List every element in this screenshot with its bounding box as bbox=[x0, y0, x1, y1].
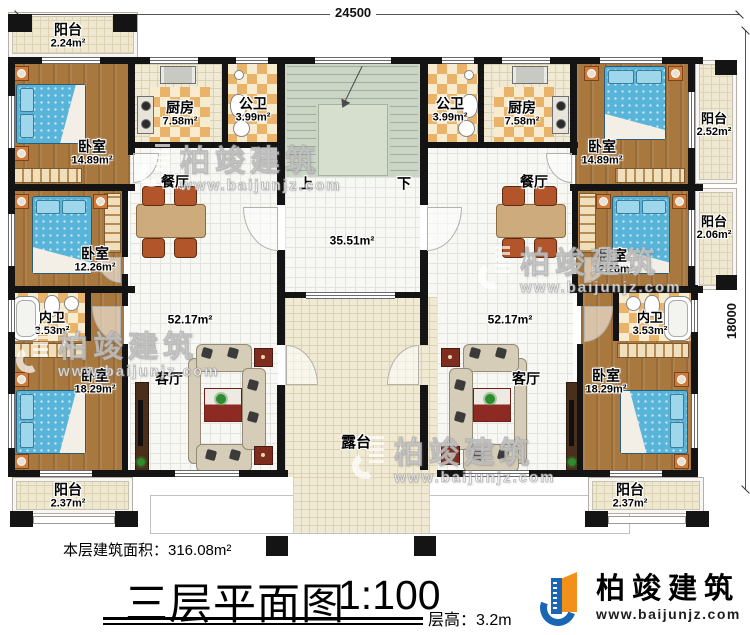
wall bbox=[577, 344, 583, 470]
room-bedroom3-left: 卧室 18.29m² bbox=[75, 368, 116, 395]
room-living-right: 客厅 bbox=[512, 371, 540, 386]
nightstand bbox=[672, 194, 687, 209]
nightstand bbox=[596, 194, 611, 209]
window bbox=[688, 210, 695, 266]
room-inner-bath-right: 内卫 3.53m² bbox=[633, 311, 668, 337]
pillow bbox=[36, 200, 60, 214]
company-name: 柏竣建筑 bbox=[596, 575, 741, 604]
balcony-post bbox=[716, 275, 737, 290]
stairs bbox=[390, 106, 418, 176]
hall-area-label: 35.51m² bbox=[330, 234, 375, 247]
scale-label: 1:100 bbox=[338, 572, 441, 619]
plant bbox=[485, 394, 495, 404]
room-public-bath-left: 公卫 3.99m² bbox=[236, 96, 271, 123]
room-bedroom1-left: 卧室 14.89m² bbox=[72, 139, 113, 166]
living-area-left: 52.17m² bbox=[168, 313, 213, 326]
wall bbox=[285, 292, 306, 298]
nightstand bbox=[14, 454, 29, 469]
wall bbox=[420, 64, 428, 205]
balcony-post bbox=[10, 511, 33, 527]
tv-icon bbox=[569, 400, 574, 446]
wardrobe bbox=[10, 343, 84, 358]
nightstand bbox=[668, 66, 683, 81]
room-bedroom2-left: 卧室 12.26m² bbox=[75, 246, 116, 273]
room-balcony-top-left: 阳台 2.24m² bbox=[51, 22, 86, 49]
pillow bbox=[642, 200, 666, 214]
wall bbox=[122, 293, 128, 306]
window bbox=[610, 470, 662, 477]
nightstand bbox=[14, 372, 29, 387]
bed-sheet bbox=[55, 85, 85, 143]
balcony-post bbox=[8, 14, 32, 32]
wall bbox=[572, 191, 578, 257]
wall bbox=[8, 184, 135, 191]
window bbox=[306, 292, 395, 299]
room-bedroom3-right: 卧室 18.29m² bbox=[586, 368, 627, 395]
right-dimension-label: 18000 bbox=[724, 298, 739, 344]
right-dimension-line bbox=[745, 30, 746, 490]
porch-post bbox=[266, 536, 288, 556]
wall bbox=[128, 142, 228, 148]
window bbox=[465, 470, 529, 477]
nightstand bbox=[584, 66, 599, 81]
rug bbox=[473, 388, 511, 422]
nightstand bbox=[14, 66, 29, 81]
room-balcony-bottom-left: 阳台 2.37m² bbox=[51, 482, 86, 509]
plant bbox=[137, 458, 145, 466]
window bbox=[175, 470, 239, 477]
pillow bbox=[20, 114, 34, 138]
bed-sheet bbox=[621, 391, 651, 453]
plant bbox=[216, 394, 226, 404]
side-table bbox=[441, 348, 460, 367]
wall bbox=[395, 292, 425, 298]
nightstand bbox=[93, 194, 108, 209]
dining-chair bbox=[534, 238, 557, 258]
wall bbox=[228, 142, 284, 148]
dining-chair bbox=[174, 238, 197, 258]
wall bbox=[277, 385, 285, 470]
bed-sheet bbox=[605, 109, 665, 139]
room-balcony-bottom-right: 阳台 2.37m² bbox=[613, 482, 648, 509]
wall bbox=[122, 191, 128, 257]
window bbox=[600, 57, 662, 64]
bathtub bbox=[664, 296, 692, 341]
room-kitchen-right: 厨房 7.58m² bbox=[505, 100, 540, 127]
top-dimension-label: 24500 bbox=[330, 5, 376, 20]
window bbox=[688, 92, 695, 148]
kitchen-sink bbox=[160, 66, 196, 84]
window bbox=[691, 394, 698, 448]
window bbox=[8, 300, 15, 332]
window bbox=[40, 470, 92, 477]
pillow bbox=[20, 88, 34, 112]
nightstand bbox=[14, 146, 29, 161]
room-living-left: 客厅 bbox=[155, 371, 183, 386]
wardrobe bbox=[615, 168, 685, 183]
nightstand bbox=[14, 194, 29, 209]
wall bbox=[478, 64, 484, 148]
wall bbox=[122, 344, 128, 470]
stairs-down-label: 下 bbox=[397, 176, 411, 191]
pillow bbox=[636, 70, 662, 84]
room-dining-right: 餐厅 bbox=[520, 174, 548, 189]
window bbox=[442, 57, 474, 64]
side-table bbox=[254, 348, 273, 367]
pillow bbox=[616, 200, 640, 214]
stove bbox=[552, 96, 569, 134]
room-balcony-right-upper: 阳台 2.52m² bbox=[697, 112, 732, 138]
wall bbox=[420, 385, 428, 470]
room-inner-bath-left: 内卫 3.53m² bbox=[35, 311, 70, 337]
window bbox=[42, 57, 100, 64]
wall bbox=[85, 293, 91, 341]
pillow bbox=[608, 70, 634, 84]
company-logo-icon bbox=[540, 568, 588, 628]
pillow bbox=[62, 200, 86, 214]
balcony-post bbox=[686, 511, 709, 527]
pillow bbox=[670, 422, 684, 448]
room-dining-left: 餐厅 bbox=[161, 174, 189, 189]
stove bbox=[137, 96, 154, 134]
balcony-post bbox=[585, 511, 608, 527]
pillow bbox=[670, 394, 684, 420]
window bbox=[315, 57, 391, 64]
living-area-right: 52.17m² bbox=[488, 313, 533, 326]
wall bbox=[613, 293, 619, 341]
nightstand bbox=[674, 372, 689, 387]
bed-sheet bbox=[55, 391, 85, 453]
room-kitchen-left: 厨房 7.58m² bbox=[163, 100, 198, 127]
wall bbox=[222, 64, 228, 148]
wardrobe bbox=[579, 193, 596, 253]
room-bedroom2-right: 卧室 12.26m² bbox=[593, 248, 634, 275]
washbasin bbox=[234, 70, 244, 80]
window bbox=[150, 57, 198, 64]
floor-area-text: 本层建筑面积：316.08m² bbox=[63, 539, 231, 560]
washbasin bbox=[464, 70, 474, 80]
side-table bbox=[441, 446, 460, 465]
window bbox=[691, 300, 698, 332]
window bbox=[236, 57, 268, 64]
wall bbox=[572, 274, 578, 286]
wall bbox=[8, 286, 135, 293]
stairs bbox=[287, 106, 316, 176]
floor-height-label: 层高：3.2m bbox=[428, 606, 512, 630]
sofa bbox=[463, 444, 519, 472]
window bbox=[8, 214, 15, 266]
room-terrace: 露台 bbox=[341, 435, 371, 452]
dining-table bbox=[136, 204, 206, 238]
dining-chair bbox=[142, 238, 165, 258]
plant bbox=[568, 458, 576, 466]
tv-icon bbox=[138, 400, 143, 446]
washbasin bbox=[64, 296, 79, 311]
balcony-post bbox=[113, 14, 137, 32]
wall bbox=[424, 142, 484, 148]
washbasin bbox=[626, 296, 641, 311]
floor-plan: 24500 18000 bbox=[0, 0, 750, 635]
balcony-post bbox=[115, 511, 138, 527]
window bbox=[502, 57, 550, 64]
title-underline bbox=[103, 623, 423, 625]
title-underline bbox=[103, 617, 423, 620]
porch-floor bbox=[293, 477, 430, 533]
wardrobe bbox=[12, 168, 82, 183]
rug bbox=[204, 388, 242, 422]
balcony-post bbox=[715, 60, 737, 75]
company-url: www.baijunjz.com bbox=[596, 606, 741, 622]
window bbox=[8, 96, 15, 148]
balcony-rail bbox=[608, 516, 686, 524]
side-table bbox=[254, 446, 273, 465]
balcony-rail bbox=[33, 516, 115, 524]
company-logo: 柏竣建筑 www.baijunjz.com bbox=[540, 568, 741, 628]
wall bbox=[122, 274, 128, 286]
window bbox=[8, 394, 15, 448]
porch-post bbox=[414, 536, 436, 556]
room-balcony-right-lower: 阳台 2.06m² bbox=[697, 215, 732, 241]
wall bbox=[277, 64, 285, 205]
pillow bbox=[20, 422, 34, 448]
wall bbox=[277, 250, 285, 345]
wardrobe bbox=[617, 343, 689, 358]
nightstand bbox=[674, 454, 689, 469]
wall bbox=[484, 142, 578, 148]
pillow bbox=[20, 394, 34, 420]
room-bedroom1-right: 卧室 14.89m² bbox=[582, 139, 623, 166]
wall bbox=[570, 184, 703, 191]
wall bbox=[577, 293, 583, 306]
stair-landing bbox=[318, 104, 388, 176]
dining-chair bbox=[502, 238, 525, 258]
stairs-up-label: 上 bbox=[299, 176, 313, 191]
dining-table bbox=[496, 204, 566, 238]
room-public-bath-right: 公卫 3.99m² bbox=[433, 96, 468, 123]
wall bbox=[570, 286, 703, 293]
kitchen-sink bbox=[512, 66, 548, 84]
